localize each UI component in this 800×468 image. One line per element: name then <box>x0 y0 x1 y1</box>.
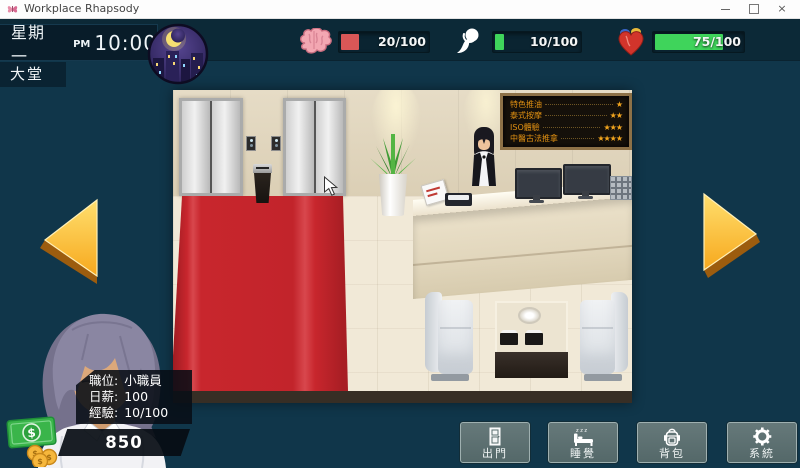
table-mat <box>525 333 543 345</box>
titlebar: Workplace Rhapsody × <box>0 0 800 19</box>
brain-bar-value: 20/100 <box>378 32 426 52</box>
stat-label: 日薪: <box>89 389 118 405</box>
brain-icon <box>296 28 332 56</box>
close-button[interactable]: × <box>768 0 796 18</box>
trash-bin-lid <box>253 164 272 173</box>
stat-value: 100 <box>124 389 148 405</box>
armchair-right <box>580 290 628 383</box>
table-mat <box>500 333 518 345</box>
sleep-button[interactable]: z z z 睡覺 <box>548 422 618 463</box>
menu-item-stars: ★★★★ <box>597 134 622 143</box>
brain-bar-fill <box>341 34 359 50</box>
location-label: 大堂 <box>0 62 66 87</box>
nav-arrow-right[interactable] <box>700 190 762 280</box>
maximize-icon <box>749 4 759 14</box>
svg-text:$: $ <box>27 426 37 441</box>
bed-icon: z z z <box>571 427 595 447</box>
stat-label: 職位: <box>89 373 118 389</box>
sleep-label: 睡覺 <box>570 447 596 461</box>
monitor-base <box>578 196 593 199</box>
stat-row-salary: 日薪: 100 <box>89 389 186 405</box>
receptionist-npc[interactable] <box>465 126 503 186</box>
elevator-call-button[interactable] <box>271 136 281 151</box>
menu-item-stars: ★ <box>616 100 622 109</box>
go-out-label: 出門 <box>482 447 508 461</box>
door-icon <box>484 427 506 447</box>
elevator-door <box>211 101 240 193</box>
heart-bar: 75/100 <box>652 31 745 53</box>
go-out-button[interactable]: 出門 <box>460 422 530 463</box>
gear-icon <box>751 427 773 447</box>
soul-bar-fill <box>495 34 504 50</box>
stat-value: 小職員 <box>124 373 162 389</box>
menu-item-stars: ★★★ <box>603 123 622 132</box>
services-menu-board: 特色推油★ 泰式按摩★★ ISO體驗★★★ 中醫古法推拿★★★★ <box>500 93 632 150</box>
table-bowl <box>518 307 541 324</box>
heart-bar-value: 75/100 <box>693 32 741 52</box>
menu-item-label: 中醫古法推拿 <box>510 134 558 143</box>
time-panel: 星期一 PM 10:00 <box>0 24 158 61</box>
lobby-scene: 特色推油★ 泰式按摩★★ ISO體驗★★★ 中醫古法推拿★★★★ <box>173 90 632 403</box>
menu-item-label: ISO體驗 <box>510 123 540 132</box>
soul-icon <box>451 26 483 58</box>
stat-value: 10/100 <box>124 405 168 421</box>
cursor-icon <box>323 176 339 198</box>
menu-item-label: 泰式按摩 <box>510 111 542 120</box>
moon-icon <box>146 22 210 86</box>
menu-item: 中醫古法推拿★★★★ <box>510 134 622 143</box>
menu-item-label: 特色推油 <box>510 100 542 109</box>
floor-edge-strip <box>173 391 632 403</box>
elevator-door <box>182 101 211 193</box>
system-label: 系統 <box>749 447 775 461</box>
card-rack <box>610 176 632 200</box>
maximize-button[interactable] <box>740 0 768 18</box>
backpack-icon <box>661 427 683 447</box>
svg-text:$: $ <box>37 457 43 466</box>
coffee-table-base <box>495 352 568 378</box>
stat-label: 經驗: <box>89 405 118 421</box>
window-title: Workplace Rhapsody <box>24 0 139 18</box>
system-button[interactable]: 系統 <box>727 422 797 463</box>
menu-item-stars: ★★ <box>610 111 622 120</box>
minimize-button[interactable] <box>712 0 740 18</box>
money-icon: $ $ $ $ <box>6 415 64 467</box>
monitor-base <box>529 200 544 203</box>
menu-item: 特色推油★ <box>510 100 622 109</box>
elevator-door <box>286 101 315 193</box>
plant-pot <box>378 174 408 216</box>
butterfly-icon <box>6 3 19 15</box>
player-stats-panel: 職位: 小職員 日薪: 100 經驗: 10/100 <box>76 370 192 424</box>
menu-item: ISO體驗★★★ <box>510 123 622 132</box>
desk-tray <box>445 193 472 206</box>
backpack-label: 背包 <box>659 447 685 461</box>
nav-arrow-left[interactable] <box>38 194 102 286</box>
meridiem-label: PM <box>73 39 90 50</box>
elevator-left[interactable] <box>179 98 243 196</box>
heart-icon <box>615 27 647 57</box>
day-label: 星期一 <box>11 19 61 67</box>
stat-row-exp: 經驗: 10/100 <box>89 405 186 421</box>
game-window: { "window": { "title": "Workplace Rhapso… <box>0 0 800 468</box>
menu-item: 泰式按摩★★ <box>510 111 622 120</box>
svg-text:z z z: z z z <box>576 428 587 434</box>
armchair-left <box>425 290 473 383</box>
soul-bar-value: 10/100 <box>530 32 578 52</box>
brain-bar: 20/100 <box>338 31 430 53</box>
elevator-call-button[interactable] <box>246 136 256 151</box>
money-amount: 850 <box>58 429 190 456</box>
soul-bar: 10/100 <box>492 31 582 53</box>
trash-bin <box>254 173 271 203</box>
stat-row-position: 職位: 小職員 <box>89 373 186 389</box>
minimize-icon <box>721 9 730 10</box>
backpack-button[interactable]: 背包 <box>637 422 707 463</box>
